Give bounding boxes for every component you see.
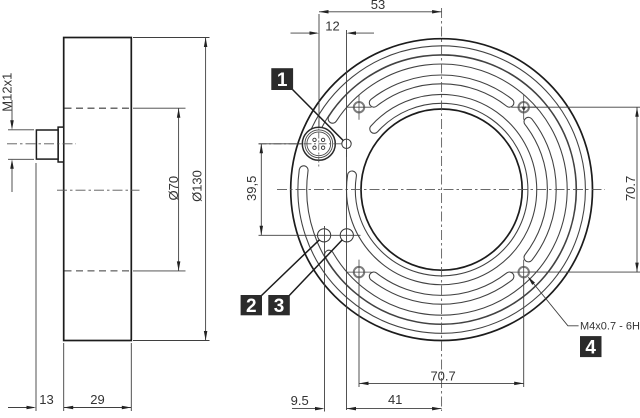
svg-text:Ø130: Ø130 [190,170,205,202]
svg-text:9.5: 9.5 [291,393,309,408]
svg-text:70.7: 70.7 [430,369,455,384]
svg-text:1: 1 [277,70,288,91]
svg-text:3: 3 [274,296,285,317]
svg-text:Ø70: Ø70 [166,176,181,201]
svg-text:70.7: 70.7 [623,176,638,201]
svg-text:M4x0.7 - 6H: M4x0.7 - 6H [580,321,640,333]
svg-text:2: 2 [246,296,257,317]
svg-text:M12x1: M12x1 [0,73,15,112]
svg-text:41: 41 [388,392,402,407]
svg-text:53: 53 [371,0,385,12]
svg-text:13: 13 [39,392,53,407]
svg-text:12: 12 [325,19,339,34]
svg-text:39,5: 39,5 [244,176,259,201]
svg-text:29: 29 [90,392,104,407]
svg-text:4: 4 [585,338,596,359]
